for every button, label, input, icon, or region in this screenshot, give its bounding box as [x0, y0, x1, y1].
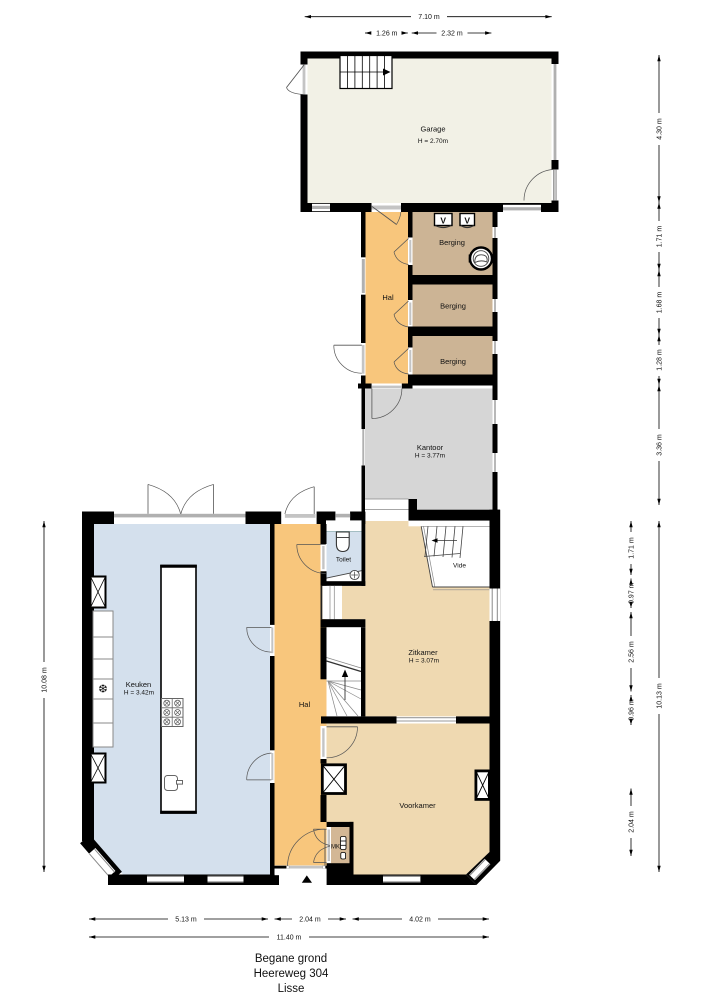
svg-text:H = 3.77m: H = 3.77m: [415, 453, 445, 460]
svg-text:Zitkamer: Zitkamer: [408, 648, 438, 657]
svg-text:4.30 m: 4.30 m: [657, 118, 664, 140]
svg-text:1.28 m: 1.28 m: [657, 349, 664, 371]
svg-text:0.97 m: 0.97 m: [629, 582, 636, 604]
svg-text:2.56 m: 2.56 m: [629, 641, 636, 663]
svg-text:Kantoor: Kantoor: [417, 443, 444, 452]
svg-text:1.71 m: 1.71 m: [629, 537, 636, 559]
svg-text:1.71 m: 1.71 m: [657, 226, 664, 248]
svg-text:H = 2.70m: H = 2.70m: [418, 138, 448, 145]
svg-text:2.32 m: 2.32 m: [441, 31, 463, 38]
svg-text:Berging: Berging: [440, 302, 466, 311]
svg-text:3.36 m: 3.36 m: [657, 434, 664, 456]
svg-text:5.13 m: 5.13 m: [175, 917, 197, 924]
svg-text:Berging: Berging: [440, 357, 466, 366]
svg-text:Vide: Vide: [453, 563, 466, 570]
svg-text:Berging: Berging: [439, 238, 465, 247]
svg-text:7.10 m: 7.10 m: [418, 14, 440, 21]
svg-text:Begane grond: Begane grond: [255, 953, 327, 965]
svg-text:Voorkamer: Voorkamer: [399, 801, 436, 810]
svg-text:❆: ❆: [98, 684, 107, 696]
svg-text:11.40 m: 11.40 m: [277, 935, 302, 942]
svg-text:2.04 m: 2.04 m: [299, 917, 321, 924]
svg-text:Lisse: Lisse: [278, 983, 305, 995]
svg-text:H = 3.42m: H = 3.42m: [124, 690, 154, 697]
svg-text:10.08 m: 10.08 m: [42, 667, 49, 692]
svg-text:0.96 m: 0.96 m: [629, 699, 636, 721]
svg-text:10.13 m: 10.13 m: [657, 683, 664, 708]
svg-text:4.02 m: 4.02 m: [409, 917, 431, 924]
svg-text:Heereweg 304: Heereweg 304: [254, 968, 329, 980]
svg-text:1.68 m: 1.68 m: [657, 292, 664, 314]
svg-text:Keuken: Keuken: [126, 680, 151, 689]
svg-text:MK: MK: [331, 844, 340, 850]
svg-text:Hal: Hal: [299, 700, 311, 709]
svg-text:1.26 m: 1.26 m: [376, 31, 398, 38]
svg-text:Hal: Hal: [382, 293, 394, 302]
svg-text:V: V: [464, 216, 470, 226]
svg-text:Garage: Garage: [420, 125, 445, 134]
svg-text:Toilet: Toilet: [336, 557, 351, 564]
svg-text:V: V: [440, 216, 446, 226]
svg-text:2.04 m: 2.04 m: [629, 811, 636, 833]
svg-text:H = 3.07m: H = 3.07m: [409, 658, 439, 665]
